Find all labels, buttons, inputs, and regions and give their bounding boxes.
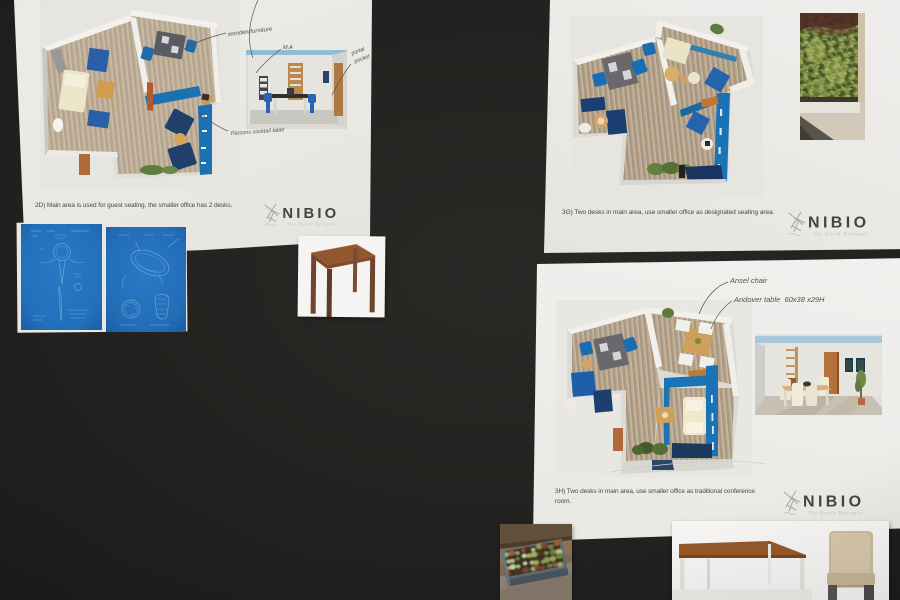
svg-text:Parsons cocktail table: Parsons cocktail table <box>231 127 285 137</box>
svg-text:The Dutch Designer: The Dutch Designer <box>813 233 868 238</box>
svg-text:NIBIO: NIBIO <box>803 494 863 511</box>
svg-text:NIBIO: NIBIO <box>808 215 868 232</box>
svg-text:M.A: M.A <box>283 45 293 51</box>
svg-text:The Dutch Designer: The Dutch Designer <box>287 223 338 228</box>
svg-text:NIBIO: NIBIO <box>282 206 338 222</box>
svg-text:The Dutch Designer: The Dutch Designer <box>808 512 863 517</box>
svg-text:wooden/furniture: wooden/furniture <box>228 27 274 38</box>
